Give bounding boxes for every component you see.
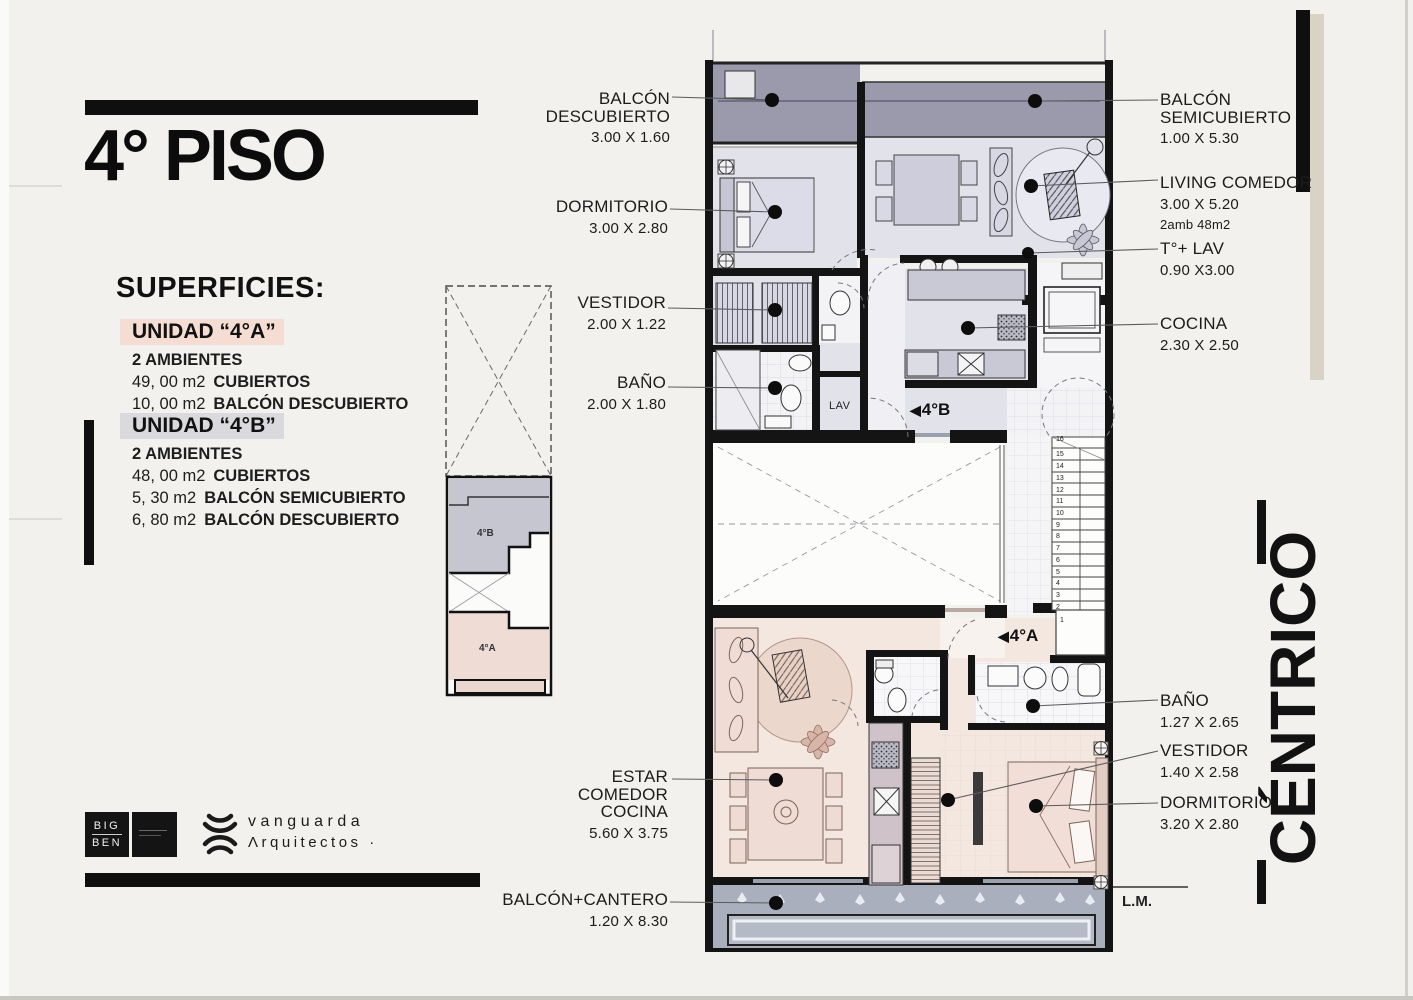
svg-text:14: 14: [1056, 463, 1064, 470]
unit-a-row: 49, 00 m2CUBIERTOS: [132, 373, 408, 392]
footer-rule: [85, 873, 480, 887]
title-top-rule: [85, 100, 478, 115]
scan-edge-bottom: [0, 996, 1413, 1000]
lav-label: LAV: [829, 400, 850, 412]
entry-marker-4a: ◀4°A: [998, 626, 1038, 646]
label-living-comedor: LIVING COMEDOR 3.00 X 5.20 2amb 48m2: [1160, 174, 1312, 234]
bigben-logo-text-top: BIG: [85, 820, 129, 833]
label-vestidor-b: VESTIDOR 2.00 X 1.22: [470, 294, 666, 333]
entry-arrow-icon: ◀: [910, 402, 921, 418]
bigben-logo-text-bottom: BEN: [85, 837, 129, 850]
label-estar-comedor-cocina: ESTAR COMEDOR COCINA 5.60 X 3.75: [470, 768, 668, 842]
svg-text:2: 2: [1056, 604, 1060, 611]
svg-text:11: 11: [1056, 498, 1063, 505]
unit-b-ambientes: 2 AMBIENTES: [132, 445, 406, 464]
svg-text:3: 3: [1056, 592, 1060, 599]
bigben-mark-detail: [139, 830, 167, 831]
unit-a-row: 10, 00 m2BALCÓN DESCUBIERTO: [132, 395, 408, 414]
unit-b-row: 6, 80 m2BALCÓN DESCUBIERTO: [132, 511, 406, 530]
unit-a-name: UNIDAD “4°A”: [120, 319, 284, 345]
svg-text:12: 12: [1056, 487, 1064, 494]
svg-text:4: 4: [1056, 580, 1060, 587]
keyplan-label-4a: 4°A: [479, 643, 496, 654]
svg-text:5: 5: [1056, 569, 1060, 576]
unit-b-row: 5, 30 m2BALCÓN SEMICUBIERTO: [132, 489, 406, 508]
unit-b-summary: UNIDAD “4°B” 2 AMBIENTES 48, 00 m2CUBIER…: [132, 414, 406, 530]
lm-label: L.M.: [1122, 893, 1152, 910]
vanguarda-wordmark: vanguarda Λrquitectos ·: [248, 813, 378, 851]
svg-text:8: 8: [1056, 533, 1060, 540]
entry-marker-4b: ◀4°B: [910, 400, 950, 420]
svg-text:7: 7: [1056, 545, 1060, 552]
bigben-mark-detail: [139, 835, 161, 836]
stair-number: 16: [1056, 436, 1064, 443]
bigben-logo-divider: [92, 834, 122, 835]
unit-a-ambientes: 2 AMBIENTES: [132, 351, 408, 370]
stairs: 16 15 14 13 12 11 10 9 8 7 6 5 4 3 2 1: [1052, 436, 1105, 655]
svg-text:9: 9: [1056, 522, 1060, 529]
vanguarda-line2: Λrquitectos ·: [248, 834, 378, 851]
unit-b-name: UNIDAD “4°B”: [120, 413, 284, 439]
label-cocina: COCINA 2.30 X 2.50: [1160, 315, 1239, 354]
label-bano-b: BAÑO 2.00 X 1.80: [470, 374, 666, 413]
label-t-lav: T°+ LAV 0.90 X3.00: [1160, 240, 1235, 279]
scan-edge-left: [0, 0, 9, 1000]
label-balcon-descubierto: BALCÓN DESCUBIERTO 3.00 X 1.60: [470, 90, 670, 147]
label-balcon-cantero: BALCÓN+CANTERO 1.20 X 8.30: [470, 891, 668, 930]
label-vestidor-a: VESTIDOR 1.40 X 2.58: [1160, 742, 1249, 781]
entry-arrow-icon: ◀: [998, 628, 1009, 644]
vanguarda-logo-icon: [205, 816, 235, 852]
label-dormitorio-b: DORMITORIO 3.00 X 2.80: [470, 198, 668, 237]
svg-text:6: 6: [1056, 557, 1060, 564]
beige-strip: [1310, 14, 1324, 380]
vanguarda-line1: vanguarda: [248, 813, 378, 831]
svg-text:13: 13: [1056, 475, 1064, 482]
label-balcon-semicubierto: BALCÓN SEMICUBIERTO 1.00 X 5.30: [1160, 91, 1291, 148]
left-accent-bar: [84, 420, 94, 565]
svg-text:15: 15: [1056, 451, 1064, 458]
scan-edge-right: [1405, 0, 1408, 1000]
unit-b-row: 48, 00 m2CUBIERTOS: [132, 467, 406, 486]
svg-text:1: 1: [1060, 617, 1064, 624]
centrico-side-text: CÉNTRICO: [1255, 448, 1331, 948]
superficies-heading: SUPERFICIES:: [116, 272, 325, 305]
key-plan: [446, 286, 551, 695]
label-bano-a: BAÑO 1.27 X 2.65: [1160, 692, 1239, 731]
keyplan-label-4b: 4°B: [477, 528, 494, 539]
right-accent-bar: [1296, 10, 1310, 192]
page-title: 4° PISO: [84, 120, 324, 192]
svg-text:10: 10: [1056, 510, 1064, 517]
unit-a-summary: UNIDAD “4°A” 2 AMBIENTES 49, 00 m2CUBIER…: [132, 320, 408, 414]
